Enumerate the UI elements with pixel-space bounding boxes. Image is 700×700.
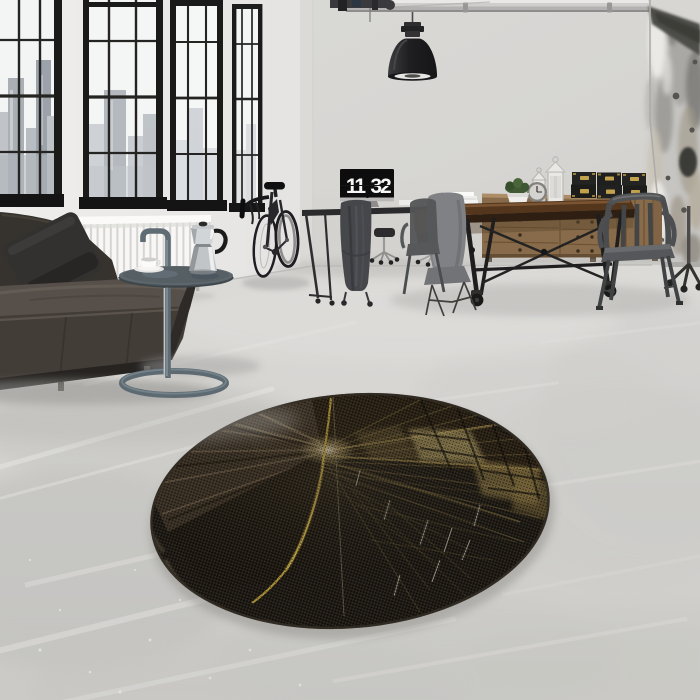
- svg-text:32: 32: [370, 175, 391, 198]
- svg-text:11: 11: [346, 175, 367, 198]
